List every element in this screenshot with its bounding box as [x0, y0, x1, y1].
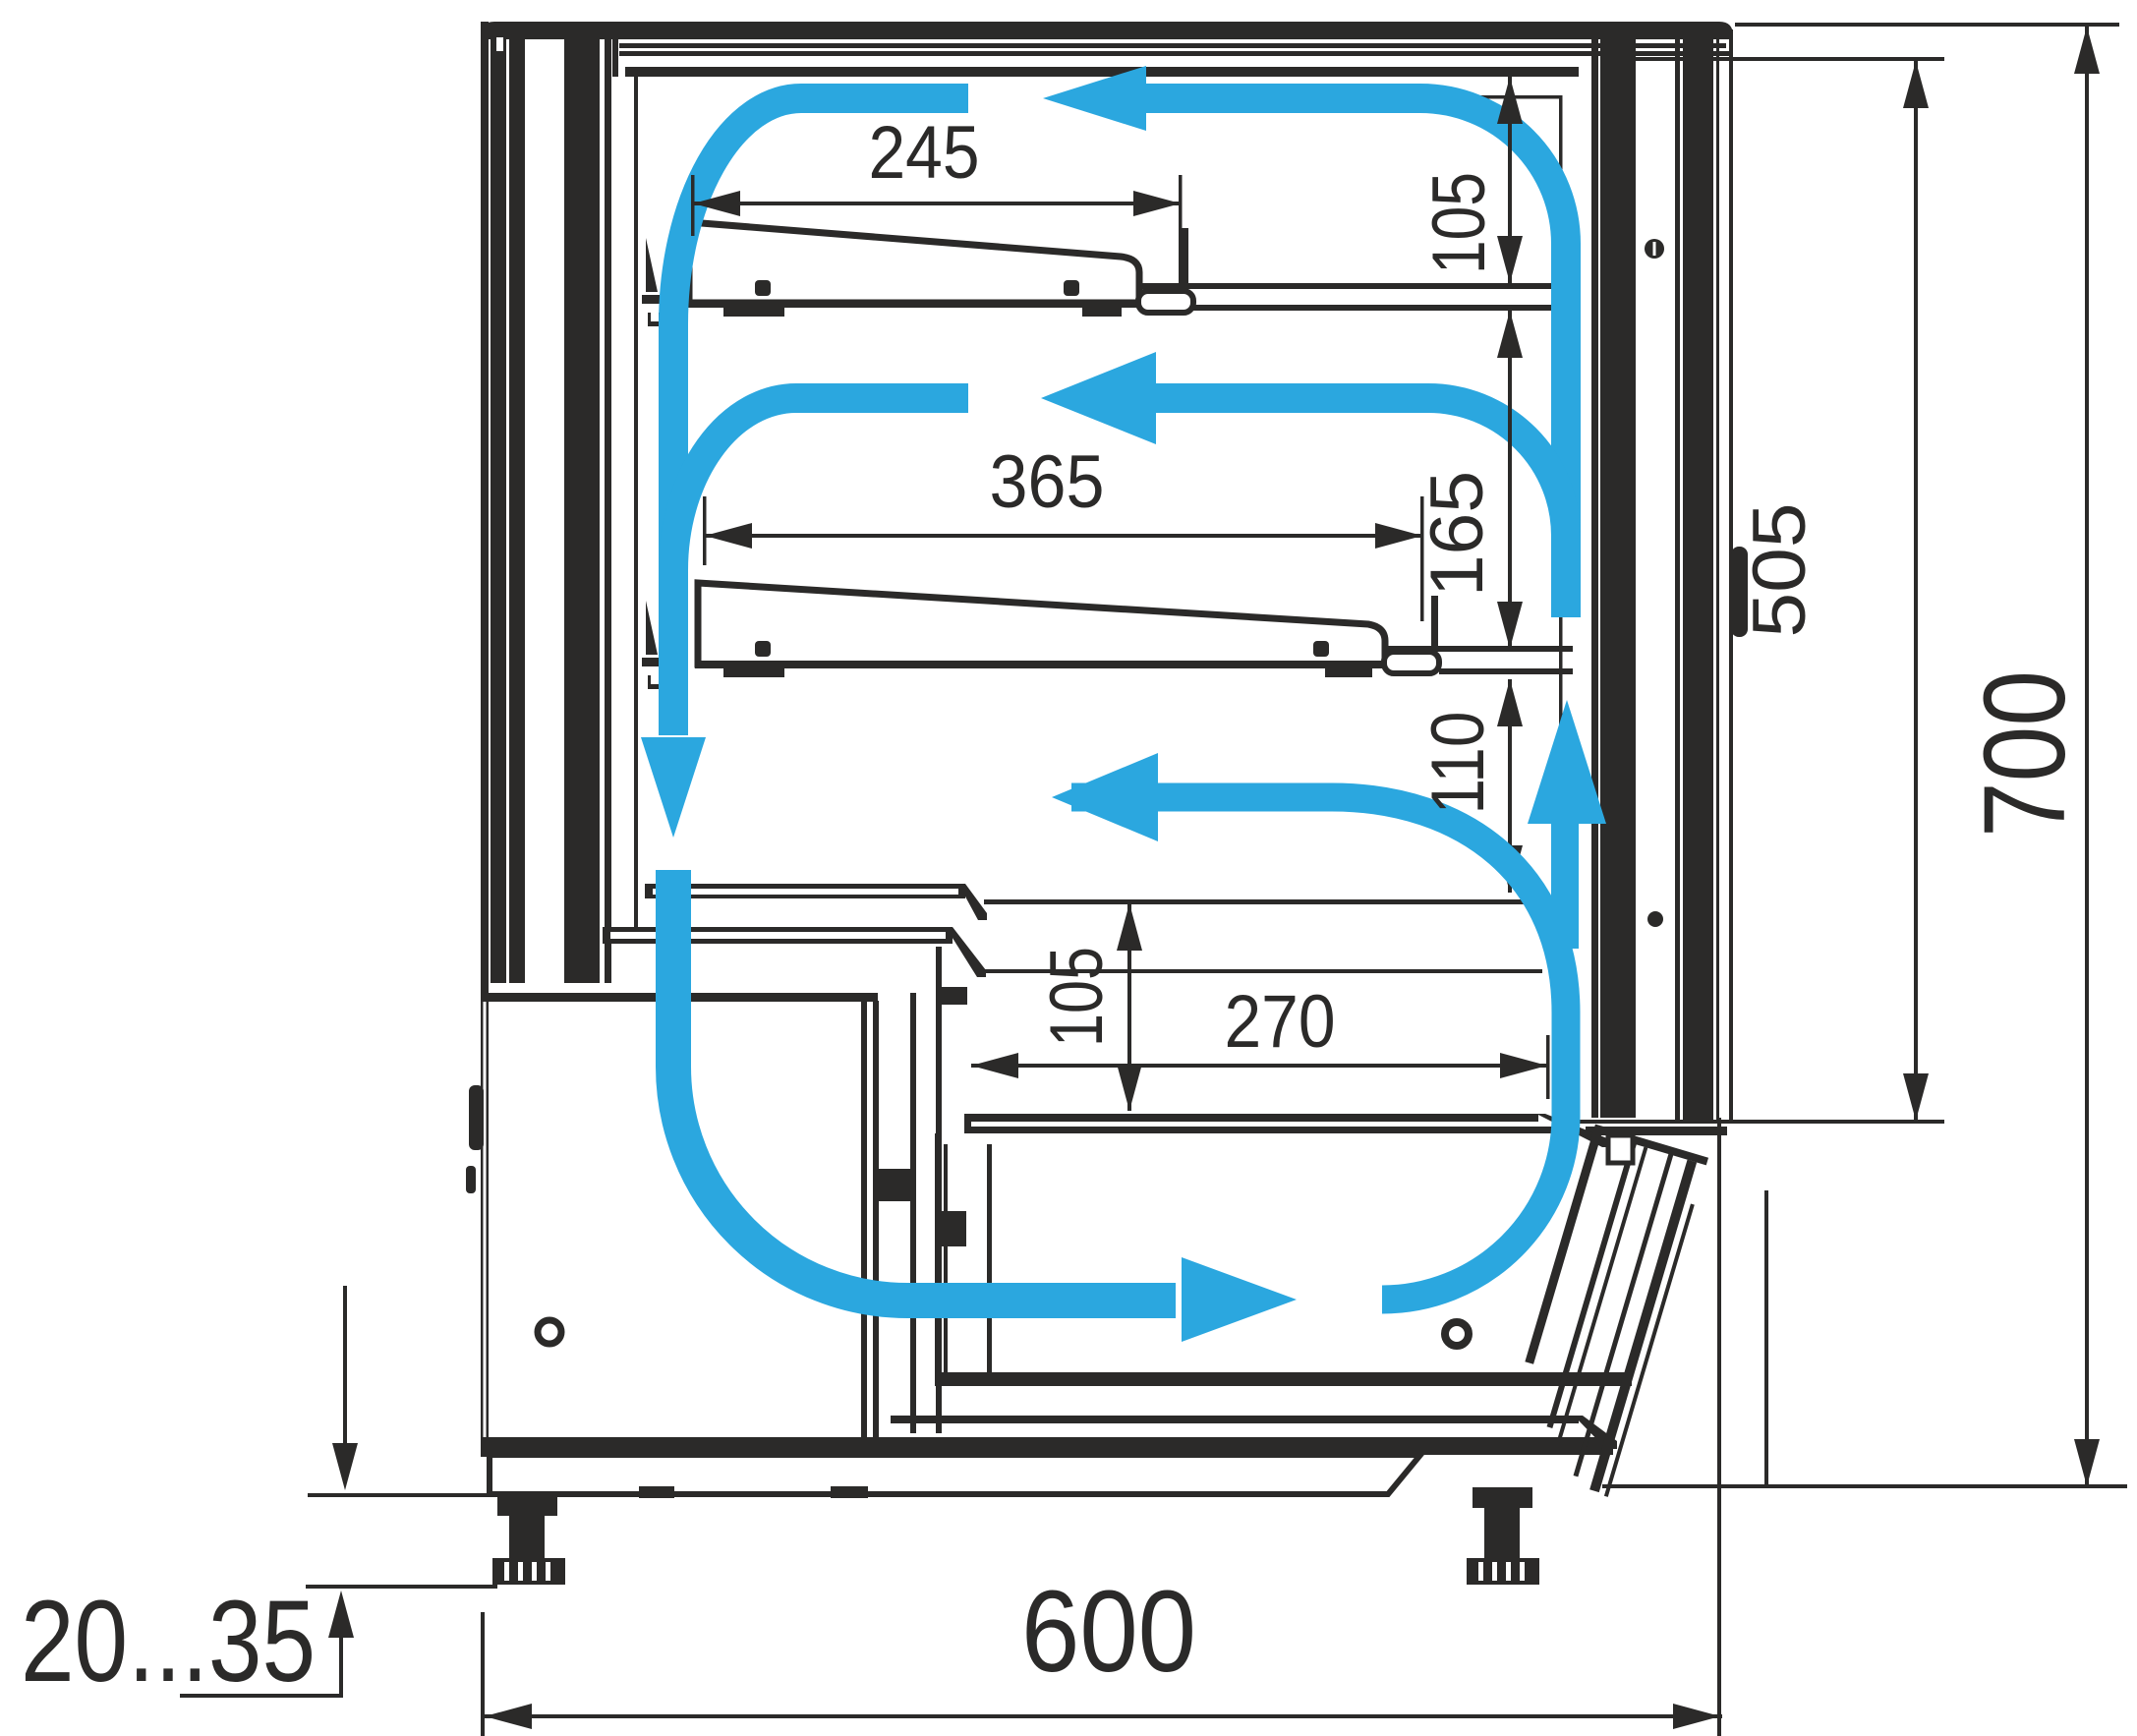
- svg-text:20...35: 20...35: [21, 1577, 316, 1707]
- svg-text:600: 600: [1021, 1567, 1196, 1697]
- svg-text:110: 110: [1416, 712, 1500, 815]
- svg-text:105: 105: [1035, 947, 1119, 1047]
- svg-text:270: 270: [1225, 980, 1336, 1064]
- svg-text:365: 365: [990, 440, 1105, 524]
- svg-text:700: 700: [1960, 670, 2090, 838]
- svg-text:165: 165: [1415, 471, 1499, 597]
- svg-text:245: 245: [869, 111, 980, 195]
- svg-text:505: 505: [1738, 503, 1821, 638]
- svg-text:105: 105: [1417, 172, 1501, 274]
